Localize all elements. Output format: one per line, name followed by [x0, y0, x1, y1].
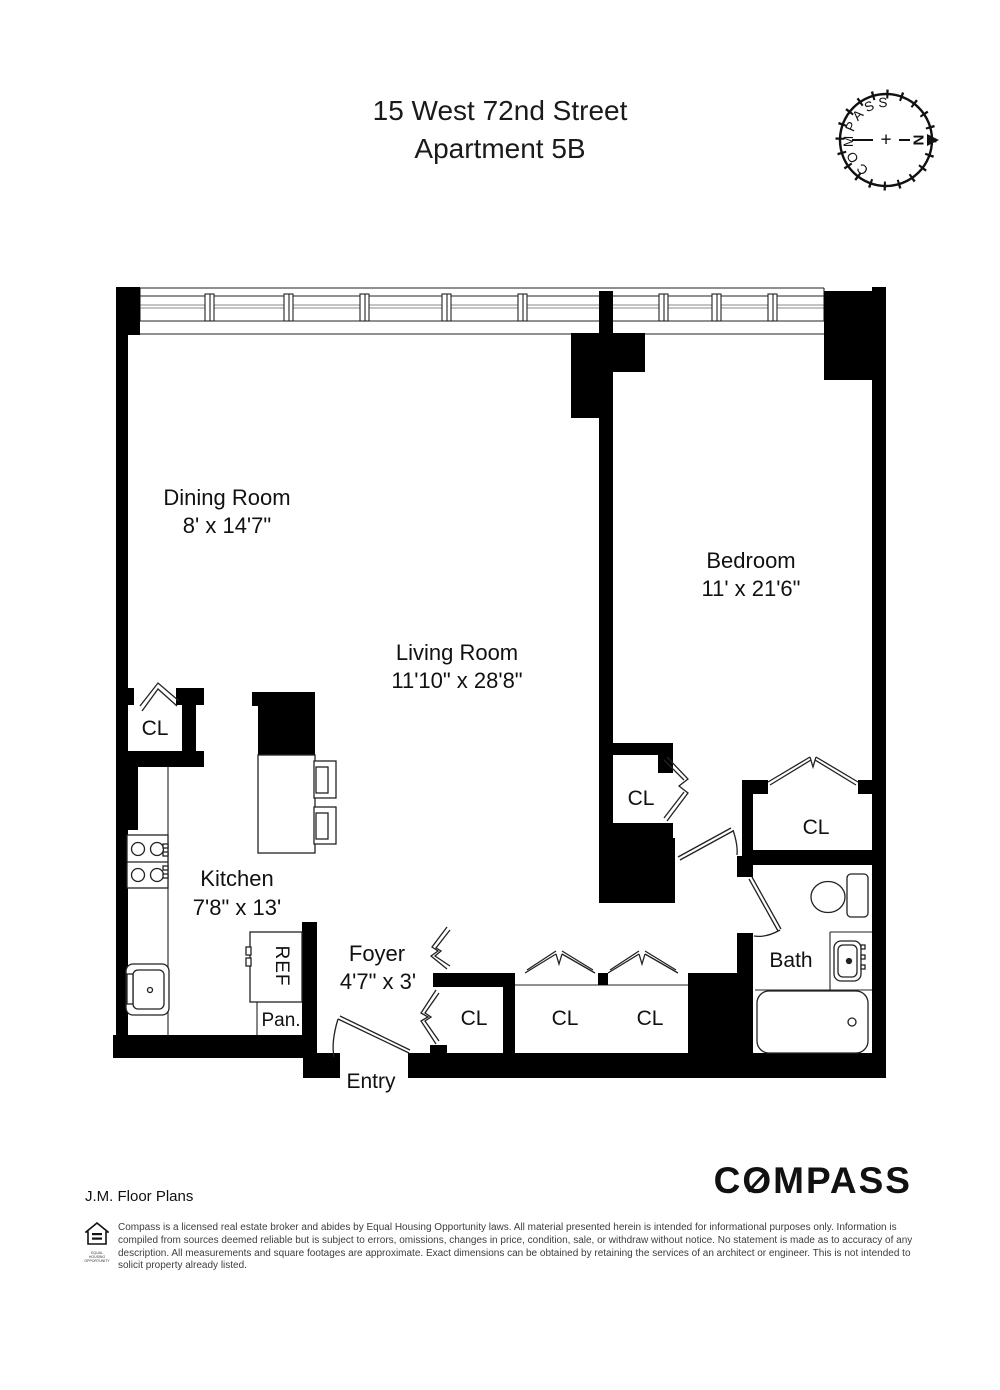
toilet [811, 874, 868, 917]
compass-logo: COMPASS [714, 1160, 912, 1202]
kitchen-sink [126, 964, 169, 1015]
hall-closet-bifold-right [608, 951, 678, 973]
foyer-label: Foyer [349, 941, 405, 966]
north-indicator: N [910, 135, 927, 146]
closet-label-2: CL [628, 787, 655, 810]
closet-label-5: CL [552, 1007, 579, 1030]
floor-plan-page: 15 West 72nd Street Apartment 5B [0, 0, 1000, 1390]
kitchen-label: Kitchen [200, 866, 273, 891]
closet-label-3: CL [803, 816, 830, 839]
dining-room-label: Dining Room [163, 485, 290, 510]
compass-rose: COMPASS + N [840, 94, 939, 186]
bedroom-label: Bedroom [706, 548, 795, 573]
hall-closet-bifold-left [525, 951, 595, 973]
equal-housing-logo: EQUAL HOUSING OPPORTUNITY [84, 1222, 110, 1263]
foyer-dims: 4'7" x 3' [340, 969, 416, 994]
brand-letter-o: O [742, 1160, 773, 1201]
refrigerator-label: REF [271, 946, 292, 987]
hall-accordion-door [431, 927, 450, 969]
floor-plan-credit: J.M. Floor Plans [85, 1188, 193, 1205]
brand-letter-o-slashed: O [742, 1160, 773, 1202]
bedroom-dims: 11' x 21'6" [702, 576, 801, 601]
closet-label-6: CL [637, 1007, 664, 1030]
closet-label-1: CL [142, 717, 169, 740]
entry-door [333, 1016, 410, 1057]
bath-door [749, 877, 781, 936]
window-band [128, 288, 872, 334]
living-room-label: Living Room [396, 640, 518, 665]
brand-letter-c: C [714, 1160, 743, 1201]
kitchen-dims: 7'8" x 13' [193, 895, 281, 920]
foyer-closet-bifold-door [421, 990, 439, 1044]
closet-label-4: CL [461, 1007, 488, 1030]
equal-housing-caption: EQUAL HOUSING OPPORTUNITY [84, 1251, 110, 1263]
entry-label: Entry [346, 1070, 396, 1093]
living-room-dims: 11'10" x 28'8" [391, 668, 522, 693]
stove [127, 835, 168, 888]
bathtub [757, 991, 868, 1053]
bath-label: Bath [769, 949, 812, 972]
closet-bifold-door [140, 683, 179, 711]
pantry-label: Pan. [261, 1010, 300, 1031]
bathroom-sink [834, 941, 865, 981]
bedroom-wall-closet-doors [768, 757, 858, 785]
bedroom-door [678, 828, 737, 860]
dining-room-dims: 8' x 14'7" [183, 513, 271, 538]
counter-peninsula [258, 755, 336, 853]
equal-housing-icon [85, 1222, 109, 1246]
brand-letters-rest: MPASS [773, 1160, 912, 1201]
legal-disclaimer: Compass is a licensed real estate broker… [118, 1222, 933, 1273]
compass-plus: + [880, 130, 891, 151]
